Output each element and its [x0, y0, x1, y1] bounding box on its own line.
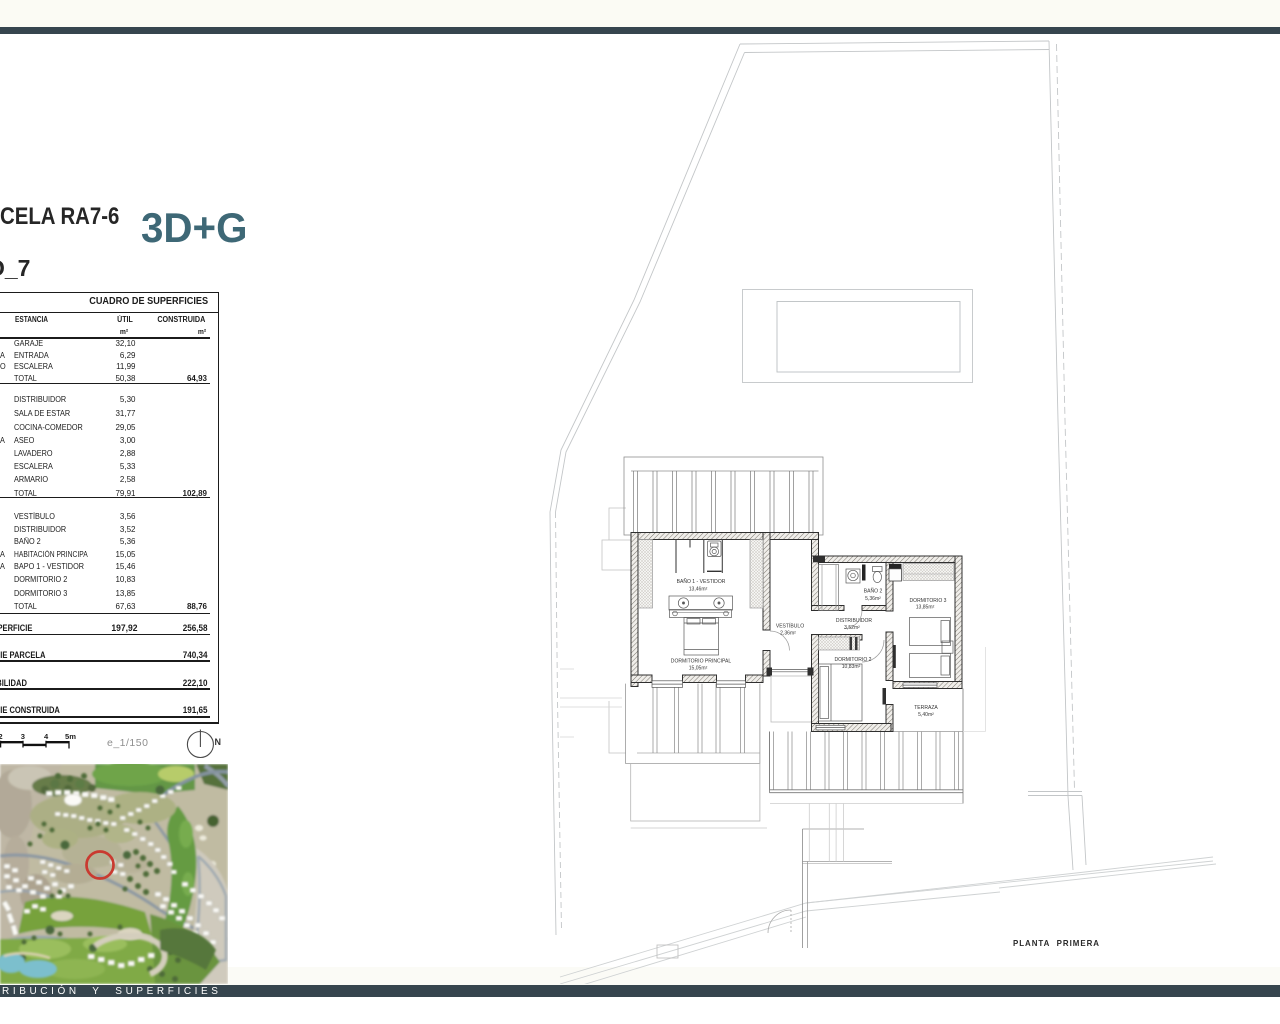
svg-text:3,52m²: 3,52m² [844, 625, 860, 631]
svg-text:DORMITORIO PRINCIPAL: DORMITORIO PRINCIPAL [671, 659, 732, 665]
svg-text:2: 2 [0, 732, 3, 741]
svg-text:DORMITORIO 3: DORMITORIO 3 [910, 598, 947, 604]
svg-text:5,40m²: 5,40m² [918, 712, 934, 718]
svg-text:3: 3 [21, 732, 25, 741]
svg-text:BAÑO 1 - VESTIDOR: BAÑO 1 - VESTIDOR [677, 578, 726, 585]
svg-text:15,05m²: 15,05m² [689, 666, 708, 672]
svg-text:VESTÍBULO: VESTÍBULO [776, 623, 804, 630]
svg-text:BAÑO 2: BAÑO 2 [864, 588, 883, 595]
svg-text:DISTRIBUIDOR: DISTRIBUIDOR [836, 618, 873, 624]
svg-text:5,36m²: 5,36m² [865, 596, 881, 602]
svg-text:10,83m²: 10,83m² [842, 664, 861, 670]
svg-text:5m: 5m [65, 732, 76, 741]
svg-text:4: 4 [44, 732, 49, 741]
svg-text:2,36m²: 2,36m² [780, 631, 796, 637]
svg-text:DORMITORIO 2: DORMITORIO 2 [835, 657, 872, 663]
svg-text:13,46m²: 13,46m² [689, 587, 708, 593]
svg-text:TERRAZA: TERRAZA [914, 705, 938, 711]
svg-text:13,85m²: 13,85m² [916, 605, 935, 611]
